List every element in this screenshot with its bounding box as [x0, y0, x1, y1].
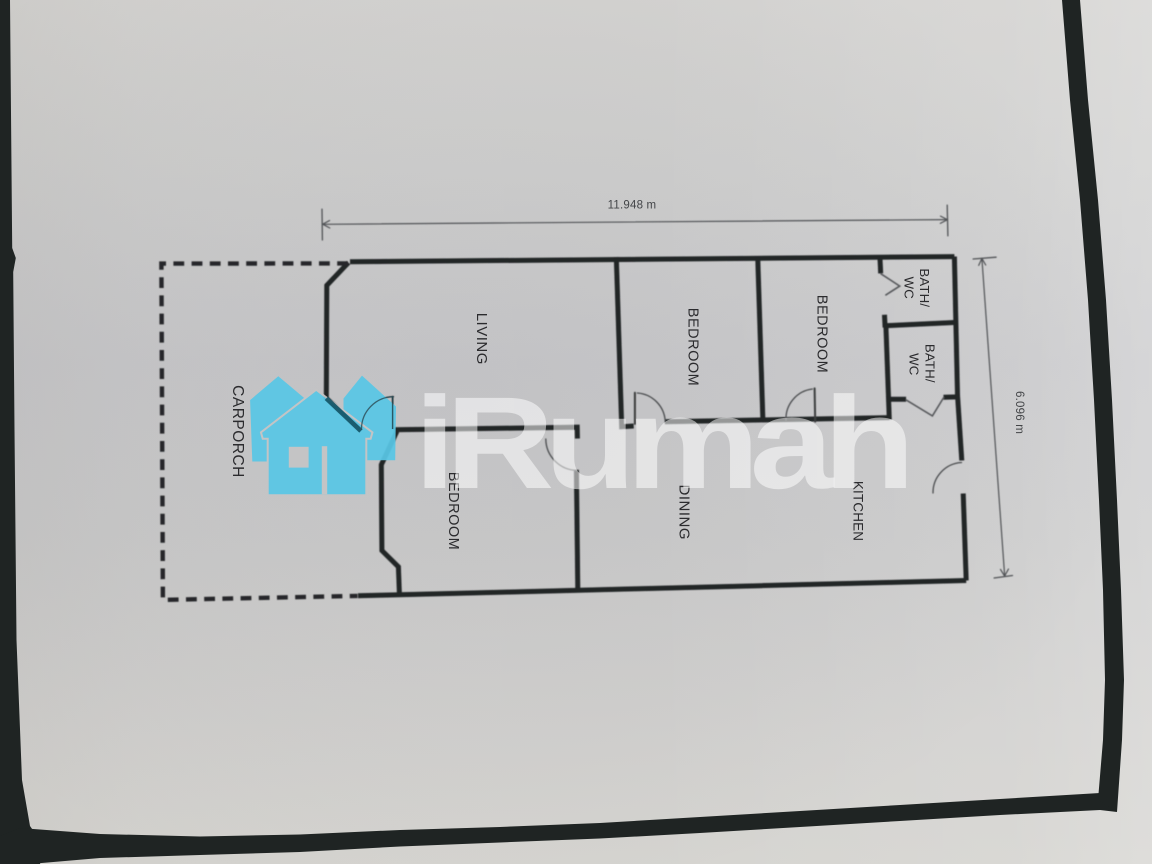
svg-text:BATH/: BATH/	[917, 268, 932, 307]
svg-text:iRumah: iRumah	[414, 369, 906, 516]
svg-text:11.948 m: 11.948 m	[608, 200, 657, 212]
svg-text:BATH/: BATH/	[922, 344, 937, 383]
svg-text:WC: WC	[907, 353, 922, 376]
svg-text:CARPORCH: CARPORCH	[229, 385, 246, 478]
svg-text:WC: WC	[901, 277, 916, 300]
svg-text:LIVING: LIVING	[473, 313, 490, 365]
svg-text:6.096 m: 6.096 m	[1013, 391, 1025, 434]
svg-text:BEDROOM: BEDROOM	[813, 295, 829, 373]
